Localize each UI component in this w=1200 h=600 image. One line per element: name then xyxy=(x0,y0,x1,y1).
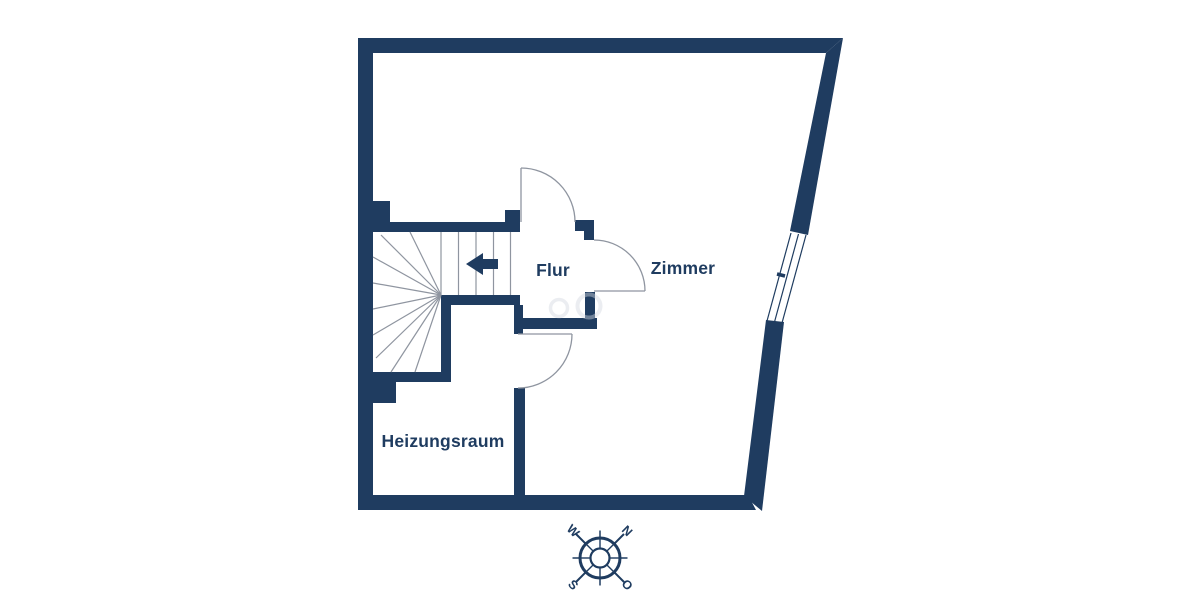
door-swing-arc xyxy=(594,240,645,291)
room-label-zimmer: Zimmer xyxy=(651,258,715,278)
stair-winder-treads xyxy=(373,232,441,372)
wall-top xyxy=(358,38,843,53)
window-pane-line xyxy=(775,234,799,322)
compass-rose-icon: W N S O xyxy=(564,522,636,594)
door-flur-to-top-room xyxy=(521,168,575,222)
window-center-tick xyxy=(777,274,785,276)
winder-right-wall xyxy=(441,305,451,382)
door-swing-arc xyxy=(518,334,572,388)
heizungsraum-right-wall xyxy=(514,388,525,495)
heizungsraum-door-jamb-upper xyxy=(514,305,523,334)
wall-bottom xyxy=(358,495,756,510)
compass-letter-south: S xyxy=(565,577,581,593)
floor-plan-canvas: Flur Zimmer Heizungsraum xyxy=(0,0,1200,600)
window xyxy=(767,233,806,323)
wall-left xyxy=(358,38,373,510)
door-flur-to-zimmer xyxy=(594,240,645,291)
stair-top-wall xyxy=(373,222,520,232)
winder-lower-wall xyxy=(441,295,520,305)
floor-plan: Flur Zimmer Heizungsraum xyxy=(0,0,1200,600)
compass-ring-segments xyxy=(580,538,620,578)
window-pane-line xyxy=(767,233,791,321)
left-wall-pillar-lower xyxy=(373,382,396,403)
wall-right-slanted-lower xyxy=(744,320,784,511)
stair-top-wall-stub xyxy=(505,210,520,224)
flur-right-wall-upper xyxy=(584,222,594,240)
room-label-flur: Flur xyxy=(536,260,570,280)
window-pane-line xyxy=(782,235,806,323)
flur-bottom-wall xyxy=(514,318,597,329)
door-to-heizungsraum xyxy=(518,334,572,388)
left-wall-pillar-upper xyxy=(373,201,390,232)
wall-right-slanted-upper xyxy=(790,38,843,235)
room-label-heizungsraum: Heizungsraum xyxy=(382,431,505,451)
stair-bottom-wall xyxy=(373,372,451,382)
door-swing-arc xyxy=(521,168,575,222)
